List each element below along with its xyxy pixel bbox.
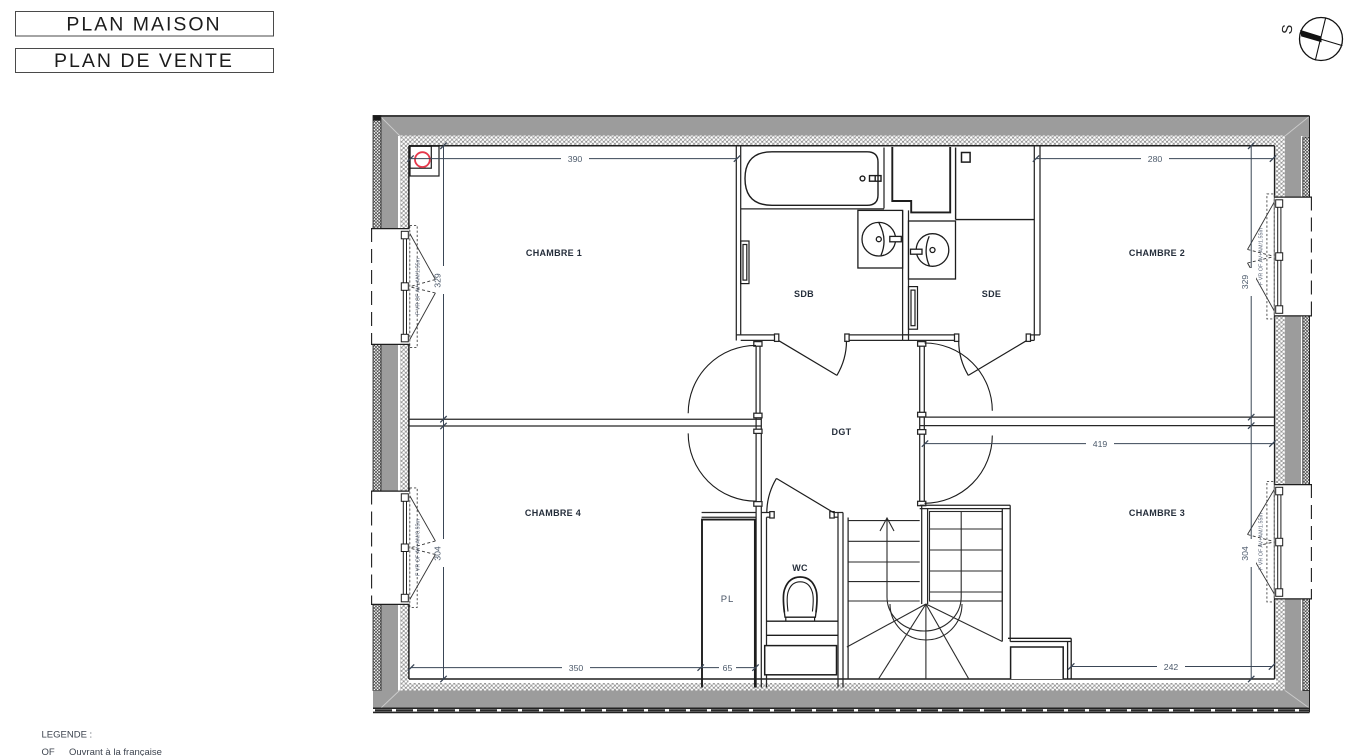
svg-text:F VR OF AV+AM/0.55m: F VR OF AV+AM/0.55m — [416, 519, 422, 576]
svg-text:S: S — [1279, 24, 1296, 36]
svg-text:419: 419 — [1093, 439, 1108, 449]
svg-text:SDB: SDB — [794, 289, 814, 299]
svg-text:PL: PL — [721, 594, 735, 605]
svg-text:280: 280 — [1148, 154, 1163, 164]
svg-text:329: 329 — [433, 273, 443, 288]
svg-text:329: 329 — [1240, 275, 1250, 290]
svg-text:SDE: SDE — [982, 289, 1001, 299]
svg-text:304: 304 — [433, 546, 443, 561]
svg-text:OF: OF — [42, 747, 55, 756]
svg-text:PLAN DE VENTE: PLAN DE VENTE — [54, 50, 234, 72]
svg-text:WC: WC — [792, 563, 808, 573]
svg-text:CHAMBRE 2: CHAMBRE 2 — [1129, 248, 1185, 258]
svg-text:Ouvrant à la française: Ouvrant à la française — [69, 747, 162, 756]
svg-text:LEGENDE :: LEGENDE : — [42, 730, 93, 741]
svg-text:350: 350 — [569, 663, 584, 673]
svg-text:CHAMBRE 1: CHAMBRE 1 — [526, 248, 582, 258]
svg-text:304: 304 — [1240, 546, 1250, 561]
svg-text:DGT: DGT — [832, 427, 852, 437]
svg-text:CHAMBRE 3: CHAMBRE 3 — [1129, 508, 1185, 518]
svg-text:65: 65 — [723, 663, 733, 673]
svg-text:PLAN MAISON: PLAN MAISON — [66, 14, 221, 36]
svg-text:242: 242 — [1164, 662, 1179, 672]
svg-text:F VR OF AV+AM/1.55m: F VR OF AV+AM/1.55m — [1259, 513, 1265, 570]
svg-text:F VR OF AV+AM/1.55m: F VR OF AV+AM/1.55m — [1259, 228, 1265, 285]
svg-text:CHAMBRE 4: CHAMBRE 4 — [525, 508, 581, 518]
svg-text:F VR OF AV+AM/1.55m: F VR OF AV+AM/1.55m — [416, 258, 422, 315]
svg-text:390: 390 — [568, 154, 583, 164]
